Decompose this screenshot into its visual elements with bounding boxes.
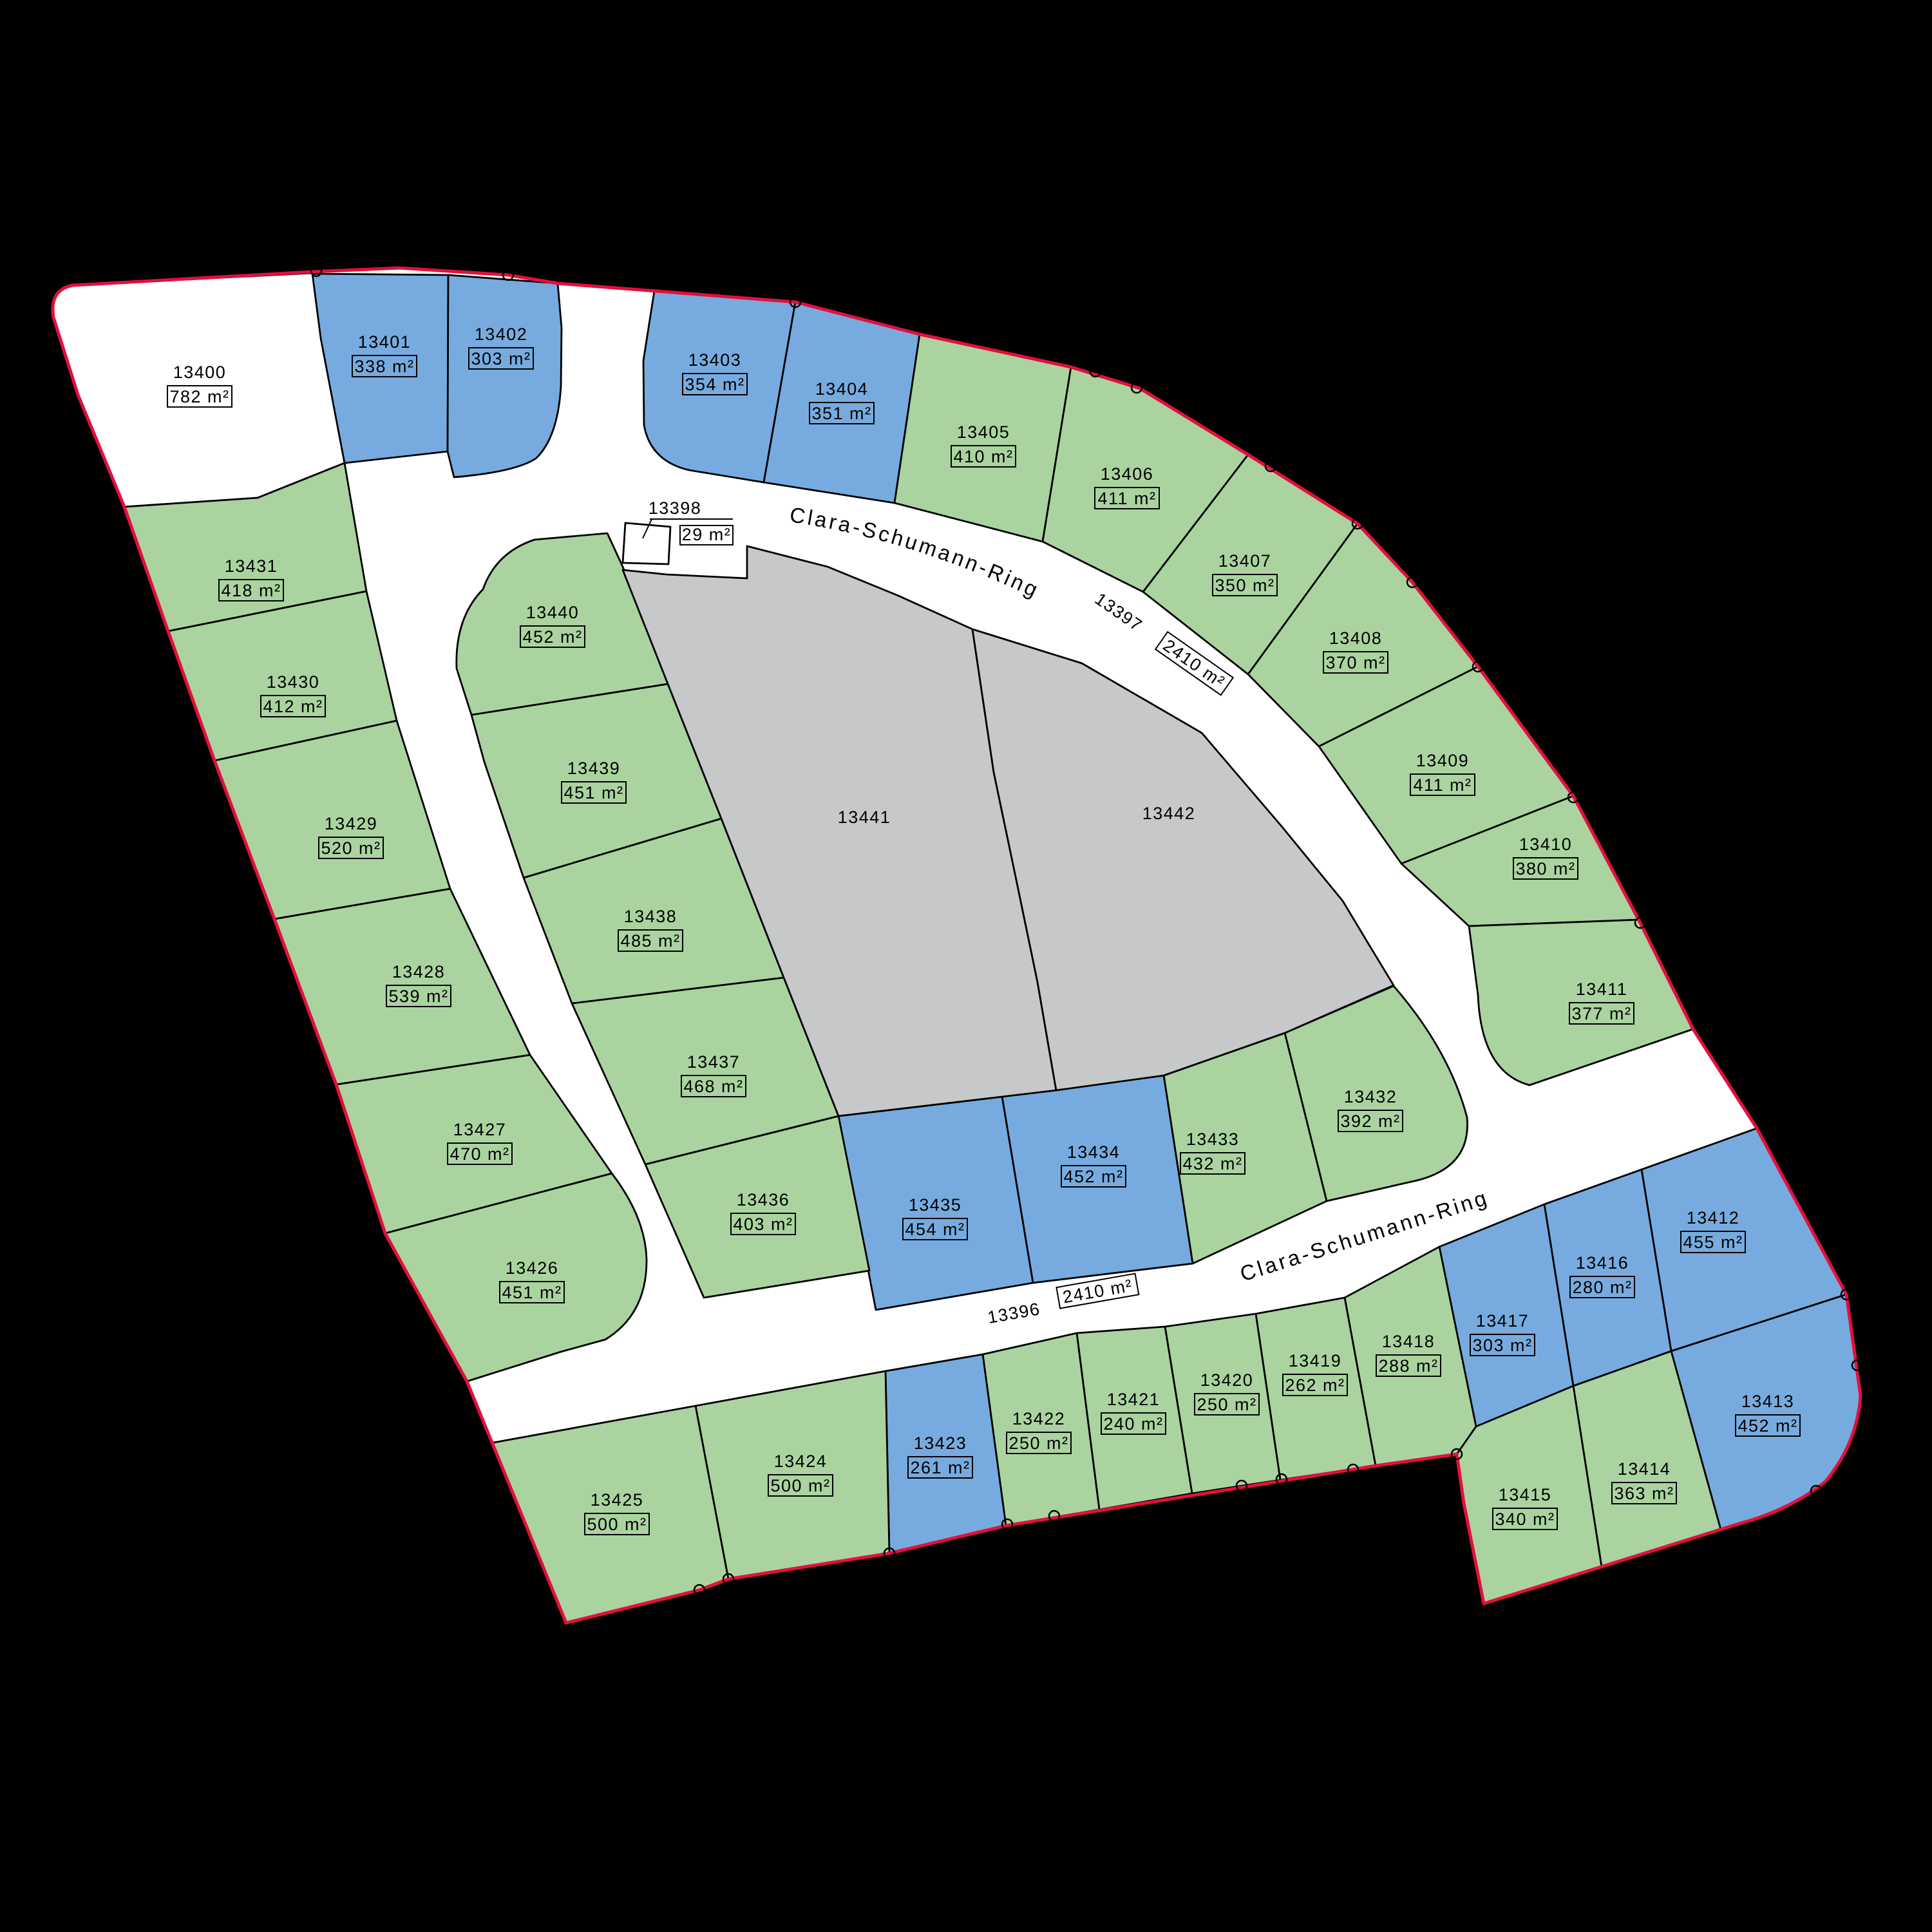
svg-text:354 m²: 354 m² <box>685 375 744 394</box>
svg-text:13416: 13416 <box>1576 1253 1629 1273</box>
svg-text:13431: 13431 <box>225 556 278 576</box>
svg-text:29 m²: 29 m² <box>682 525 732 544</box>
svg-text:288 m²: 288 m² <box>1378 1356 1438 1376</box>
svg-text:13436: 13436 <box>737 1190 790 1209</box>
svg-text:262 m²: 262 m² <box>1285 1376 1345 1395</box>
svg-text:451 m²: 451 m² <box>502 1283 562 1302</box>
svg-text:392 m²: 392 m² <box>1340 1112 1400 1131</box>
svg-text:13405: 13405 <box>957 422 1010 442</box>
svg-text:452 m²: 452 m² <box>1063 1167 1123 1186</box>
svg-text:411 m²: 411 m² <box>1097 489 1156 508</box>
svg-text:13420: 13420 <box>1200 1370 1254 1390</box>
svg-text:500 m²: 500 m² <box>587 1515 647 1534</box>
svg-text:452 m²: 452 m² <box>522 627 582 647</box>
svg-text:13434: 13434 <box>1067 1142 1121 1162</box>
svg-text:13438: 13438 <box>624 907 677 926</box>
svg-text:13398: 13398 <box>649 498 702 518</box>
svg-text:338 m²: 338 m² <box>354 357 414 376</box>
svg-text:452 m²: 452 m² <box>1738 1416 1797 1435</box>
svg-text:13440: 13440 <box>526 603 580 622</box>
svg-text:451 m²: 451 m² <box>563 783 623 802</box>
svg-text:13415: 13415 <box>1499 1485 1552 1504</box>
svg-text:470 m²: 470 m² <box>450 1144 509 1164</box>
svg-text:13414: 13414 <box>1618 1459 1671 1479</box>
svg-text:377 m²: 377 m² <box>1571 1004 1631 1023</box>
svg-text:13424: 13424 <box>774 1452 828 1471</box>
svg-text:250 m²: 250 m² <box>1197 1395 1256 1414</box>
svg-text:432 m²: 432 m² <box>1182 1154 1242 1173</box>
svg-text:13406: 13406 <box>1101 464 1154 484</box>
svg-text:340 m²: 340 m² <box>1495 1510 1555 1529</box>
svg-text:363 m²: 363 m² <box>1614 1484 1674 1503</box>
svg-text:13407: 13407 <box>1218 551 1272 571</box>
svg-text:403 m²: 403 m² <box>733 1215 793 1234</box>
svg-text:13442: 13442 <box>1142 804 1196 823</box>
svg-text:261 m²: 261 m² <box>910 1458 970 1477</box>
svg-text:13432: 13432 <box>1344 1087 1397 1106</box>
svg-text:350 m²: 350 m² <box>1215 576 1274 595</box>
svg-text:13419: 13419 <box>1289 1351 1342 1370</box>
svg-text:412 m²: 412 m² <box>263 697 323 716</box>
svg-text:13408: 13408 <box>1329 629 1383 648</box>
svg-text:13417: 13417 <box>1476 1311 1529 1331</box>
svg-text:13409: 13409 <box>1416 751 1470 770</box>
svg-text:13439: 13439 <box>567 759 621 778</box>
svg-text:13428: 13428 <box>392 962 446 981</box>
svg-text:240 m²: 240 m² <box>1103 1414 1163 1434</box>
svg-text:303 m²: 303 m² <box>471 349 531 368</box>
svg-text:13404: 13404 <box>815 379 869 399</box>
svg-text:13429: 13429 <box>325 814 378 833</box>
svg-text:13400: 13400 <box>173 363 227 382</box>
svg-text:280 m²: 280 m² <box>1572 1278 1632 1297</box>
svg-text:13401: 13401 <box>358 332 412 352</box>
svg-text:13403: 13403 <box>688 350 742 370</box>
svg-text:13425: 13425 <box>591 1490 644 1510</box>
svg-text:13426: 13426 <box>506 1258 559 1278</box>
svg-text:454 m²: 454 m² <box>905 1220 965 1239</box>
svg-text:13410: 13410 <box>1519 835 1573 854</box>
svg-text:520 m²: 520 m² <box>321 838 381 858</box>
svg-text:13423: 13423 <box>914 1434 967 1453</box>
svg-text:13418: 13418 <box>1382 1332 1435 1351</box>
svg-text:370 m²: 370 m² <box>1325 653 1385 672</box>
svg-text:500 m²: 500 m² <box>770 1476 830 1495</box>
svg-text:13412: 13412 <box>1687 1208 1740 1227</box>
svg-text:485 m²: 485 m² <box>620 931 680 951</box>
svg-text:13435: 13435 <box>909 1195 962 1215</box>
svg-text:418 m²: 418 m² <box>221 581 281 600</box>
svg-text:411 m²: 411 m² <box>1413 775 1472 795</box>
svg-text:380 m²: 380 m² <box>1515 859 1575 878</box>
svg-text:13430: 13430 <box>267 672 320 692</box>
svg-text:250 m²: 250 m² <box>1009 1434 1068 1453</box>
svg-text:13413: 13413 <box>1741 1392 1795 1411</box>
svg-text:13411: 13411 <box>1576 980 1628 999</box>
svg-text:13441: 13441 <box>838 808 891 827</box>
svg-text:13427: 13427 <box>453 1120 507 1139</box>
svg-text:13433: 13433 <box>1186 1130 1240 1149</box>
svg-text:13402: 13402 <box>475 325 528 344</box>
svg-text:468 m²: 468 m² <box>683 1077 743 1096</box>
svg-text:539 m²: 539 m² <box>388 987 448 1006</box>
svg-text:303 m²: 303 m² <box>1472 1336 1532 1355</box>
svg-text:351 m²: 351 m² <box>811 404 871 423</box>
svg-text:13421: 13421 <box>1107 1390 1160 1409</box>
svg-text:782 m²: 782 m² <box>169 387 229 406</box>
svg-text:410 m²: 410 m² <box>953 447 1013 466</box>
svg-text:13437: 13437 <box>687 1052 741 1072</box>
svg-text:455 m²: 455 m² <box>1683 1233 1743 1252</box>
svg-text:13422: 13422 <box>1012 1409 1066 1428</box>
